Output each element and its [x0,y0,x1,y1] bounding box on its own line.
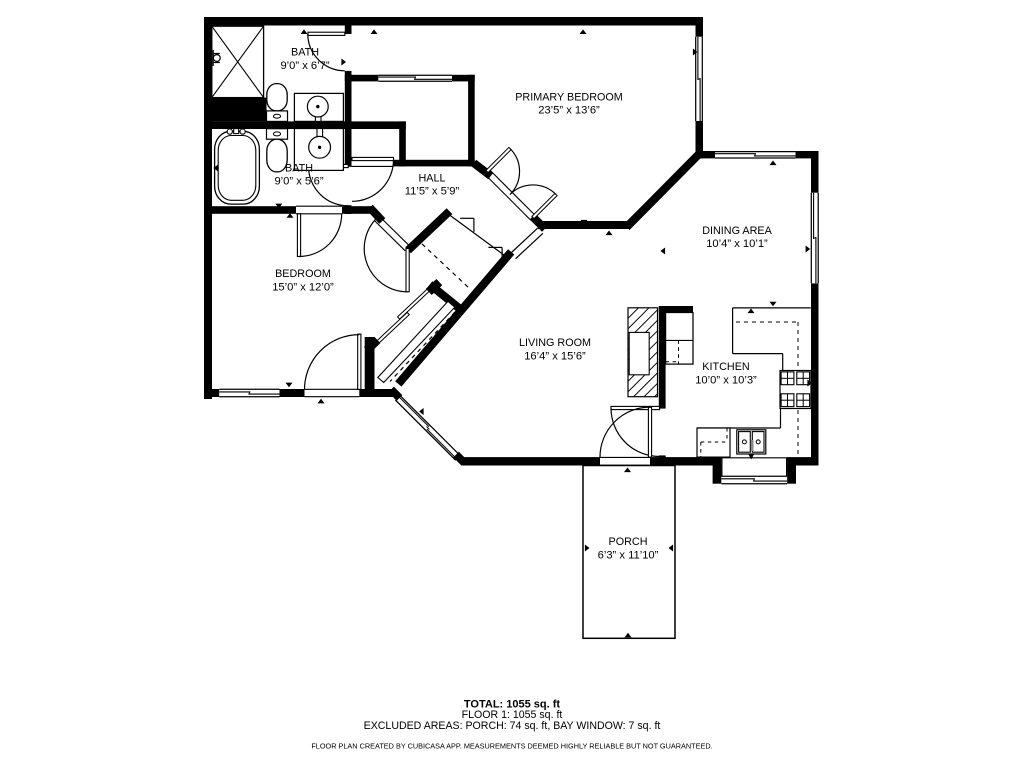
svg-text:EXCLUDED AREAS: PORCH: 74 sq.: EXCLUDED AREAS: PORCH: 74 sq. ft, BAY WI… [364,720,661,732]
svg-text:HALL: HALL [418,172,445,184]
svg-text:9’0” x 6’7”: 9’0” x 6’7” [280,60,329,72]
svg-text:BATH: BATH [285,162,313,174]
svg-text:23’5” x 13’6”: 23’5” x 13’6” [538,105,600,117]
svg-text:15’0” x 12’0”: 15’0” x 12’0” [272,281,334,293]
svg-text:16’4” x 15’6”: 16’4” x 15’6” [524,350,586,362]
svg-text:BEDROOM: BEDROOM [275,268,331,280]
svg-text:DINING AREA: DINING AREA [702,225,772,237]
svg-text:PORCH: PORCH [609,536,648,548]
svg-text:11’5” x 5’9”: 11’5” x 5’9” [405,186,460,198]
svg-text:PRIMARY BEDROOM: PRIMARY BEDROOM [515,91,623,103]
svg-text:10’0” x 10’3”: 10’0” x 10’3” [695,375,757,387]
svg-text:9’0” x 5’6”: 9’0” x 5’6” [274,176,323,188]
svg-text:KITCHEN: KITCHEN [702,361,749,373]
svg-text:6’3” x 11’10”: 6’3” x 11’10” [598,549,659,561]
svg-text:10’4” x 10’1”: 10’4” x 10’1” [706,238,768,250]
svg-text:FLOOR PLAN CREATED BY CUBICASA: FLOOR PLAN CREATED BY CUBICASA APP. MEAS… [311,742,712,751]
svg-text:BATH: BATH [291,47,319,59]
svg-text:LIVING ROOM: LIVING ROOM [519,337,591,349]
